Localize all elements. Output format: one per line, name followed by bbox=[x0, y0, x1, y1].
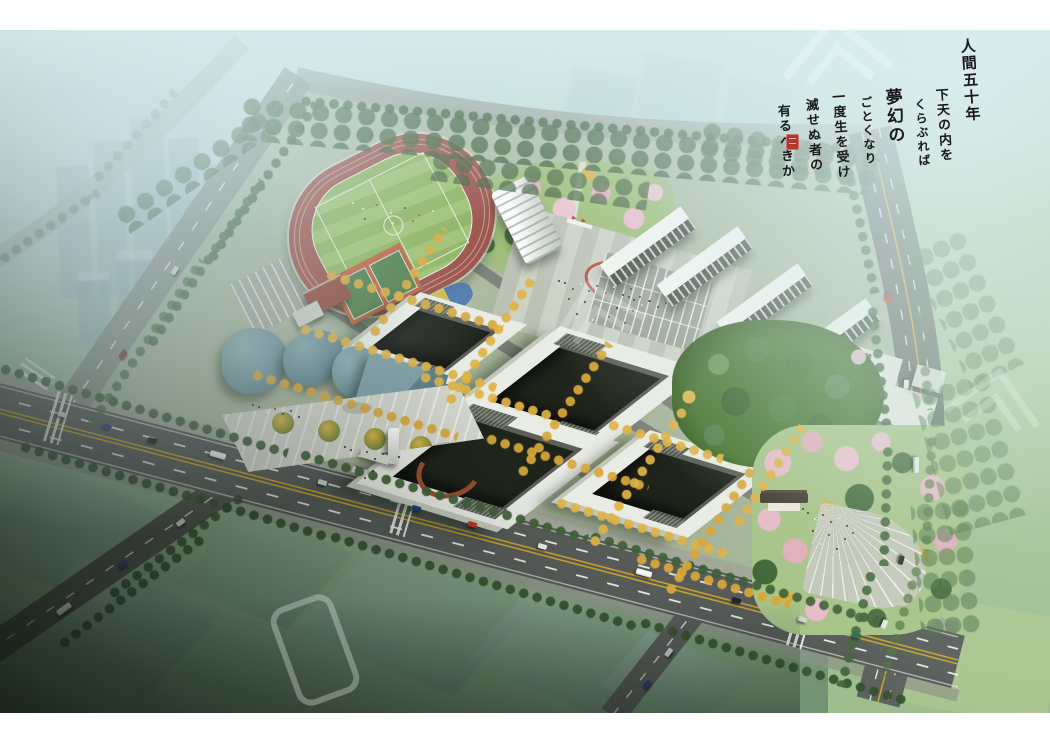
gate-roof bbox=[760, 493, 808, 503]
top-white-margin bbox=[0, 0, 1050, 30]
rendering-canvas: 人間五十年 下天の内を くらぶれば 夢幻の ごとくなり 一度生を受け 滅せぬ者の… bbox=[0, 0, 1050, 750]
car bbox=[904, 380, 909, 389]
tree-planter bbox=[272, 412, 294, 434]
seal-mark bbox=[789, 143, 796, 144]
artist-seal bbox=[786, 134, 799, 150]
east-forest bbox=[910, 497, 982, 642]
pedestrians-park bbox=[802, 508, 804, 510]
pedestrians-plaza bbox=[558, 280, 560, 282]
calligraphy-column: 人間五十年 bbox=[959, 38, 980, 124]
pedestrians-forecourt bbox=[252, 404, 254, 406]
bus bbox=[913, 457, 919, 473]
players-on-pitch bbox=[352, 202, 354, 204]
traditional-gate-pavilion bbox=[760, 487, 808, 513]
tree-planter bbox=[318, 420, 340, 442]
calligraphy-column: 夢幻の bbox=[882, 87, 903, 145]
tree-planter bbox=[364, 428, 386, 450]
gate-walls bbox=[768, 503, 800, 511]
bottom-white-margin bbox=[0, 713, 1050, 750]
pedestrians-entrance bbox=[344, 446, 346, 448]
seal-mark bbox=[789, 138, 796, 139]
watermark-logo bbox=[945, 361, 1049, 465]
